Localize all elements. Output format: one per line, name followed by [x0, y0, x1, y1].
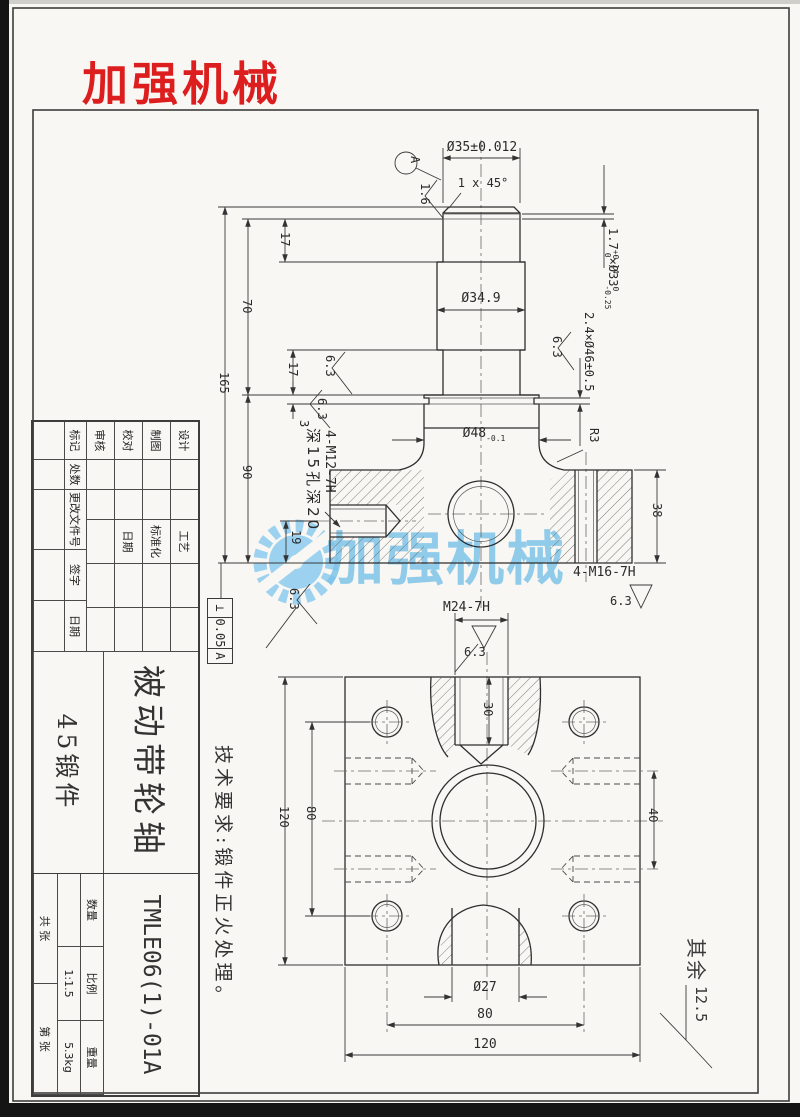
tb-process: 工艺	[170, 520, 198, 564]
roughness-6-3-m16: 6.3	[610, 594, 632, 608]
dim-chamfer: 1 x 45°	[458, 176, 509, 190]
dim-3: 3	[297, 420, 311, 427]
tb-page: 第 张	[33, 984, 57, 1095]
datum-a-label: A	[408, 156, 422, 164]
dim-120-bottom: 120	[473, 1037, 496, 1052]
tb-weight-value: 5.3kg	[57, 1021, 80, 1095]
roughness-6-3-step: 6.3	[323, 355, 337, 377]
tb-standardize: 标准化	[142, 520, 170, 564]
scan-edge-left	[0, 0, 9, 1117]
other-roughness-prefix: 其余	[683, 938, 712, 982]
title-block-name: 被动带轮轴 45锻件	[33, 652, 198, 874]
dim-80-bottom: 80	[477, 1007, 493, 1022]
tb-hdr-docno: 更改文件号	[64, 490, 86, 550]
side-pockets	[334, 758, 658, 882]
drawing-number: TMLE06(1)-01A	[103, 874, 198, 1095]
dim-groove-mid: 2.4×Ø46±0.5	[582, 312, 596, 391]
roughness-1-6: 1.6	[418, 183, 432, 205]
tb-hdr-date: 日期	[64, 601, 86, 652]
plan-dimensions: M24-7H 6.3 30 120 80 40 Ø27 80 12	[277, 600, 660, 1062]
tb-scale-label: 比例	[80, 947, 103, 1021]
tb-qty-label: 数量	[80, 874, 103, 947]
tolerance-value: 0.05	[208, 618, 232, 649]
dim-groove-top: 1.7+0.140×Ø330-0.25	[603, 228, 620, 310]
tolerance-frame: ⊥ 0.05 A	[207, 598, 233, 664]
tolerance-datum: A	[208, 649, 232, 663]
dim-30: 30	[481, 702, 495, 716]
dim-38: 38	[650, 503, 664, 517]
tb-hdr-count: 处数	[64, 460, 86, 490]
tb-draft: 制图	[142, 422, 170, 460]
tb-check: 校对	[114, 422, 142, 460]
dim-90: 90	[240, 465, 254, 479]
tb-date: 日期	[114, 520, 142, 564]
part-name: 被动带轮轴	[103, 652, 198, 873]
dim-dia349: Ø34.9	[461, 291, 500, 306]
dim-dia27: Ø27	[473, 980, 496, 995]
dim-17-top: 17	[278, 232, 292, 246]
tb-hdr-mark: 标记	[64, 422, 86, 460]
roughness-6-3-m12: 6.3	[315, 398, 329, 420]
title-block: 设计 工艺 制图 标准化 校对 日期 审核 标记 处数 更改文件号 签字 日期	[31, 420, 200, 1097]
roughness-6-3-bottom: 6.3	[287, 588, 301, 610]
other-roughness-value: 12.5	[692, 986, 710, 1022]
tb-sheet: 共 张	[33, 874, 57, 984]
other-roughness: 其余 12.5	[656, 938, 712, 1060]
tb-hdr-sign: 签字	[64, 550, 86, 601]
dim-40: 40	[646, 808, 660, 822]
title-block-number: TMLE06(1)-01A 数量 比例 重量 1:1.5 5.3kg 共 张 第…	[33, 874, 198, 1095]
tb-audit: 审核	[86, 422, 114, 460]
dim-80-left: 80	[304, 806, 318, 820]
label-m12-note: 深15孔深20	[304, 428, 322, 532]
title-block-signatures: 设计 工艺 制图 标准化 校对 日期 审核 标记 处数 更改文件号 签字 日期	[33, 422, 198, 652]
tb-design: 设计	[170, 422, 198, 460]
technical-note: 技术要求:锻件正火处理。	[206, 745, 238, 1045]
dim-dia35: Ø35±0.012	[447, 140, 517, 155]
dim-19: 19	[289, 530, 303, 544]
dim-165: 165	[217, 372, 231, 394]
tolerance-symbol: ⊥	[208, 599, 232, 618]
label-m24: M24-7H	[443, 600, 490, 615]
dim-r3: R3	[587, 428, 601, 442]
material: 45锻件	[33, 652, 103, 873]
tb-weight-label: 重量	[80, 1021, 103, 1095]
dim-120-left: 120	[277, 806, 291, 828]
scan-edge-bottom	[0, 1103, 800, 1117]
dim-70: 70	[240, 299, 254, 313]
dim-17-mid: 17	[286, 362, 300, 376]
front-dimensions: Ø35±0.012 1 x 45° A 1.6 1.7+0.140×Ø330-0…	[217, 140, 666, 648]
roughness-6-3-groove: 6.3	[550, 336, 564, 358]
corner-holes	[365, 700, 606, 938]
label-m12: 4-M12-7H	[322, 430, 337, 493]
tb-scale-value: 1:1.5	[57, 947, 80, 1021]
label-m16: 4-M16-7H	[573, 565, 636, 580]
